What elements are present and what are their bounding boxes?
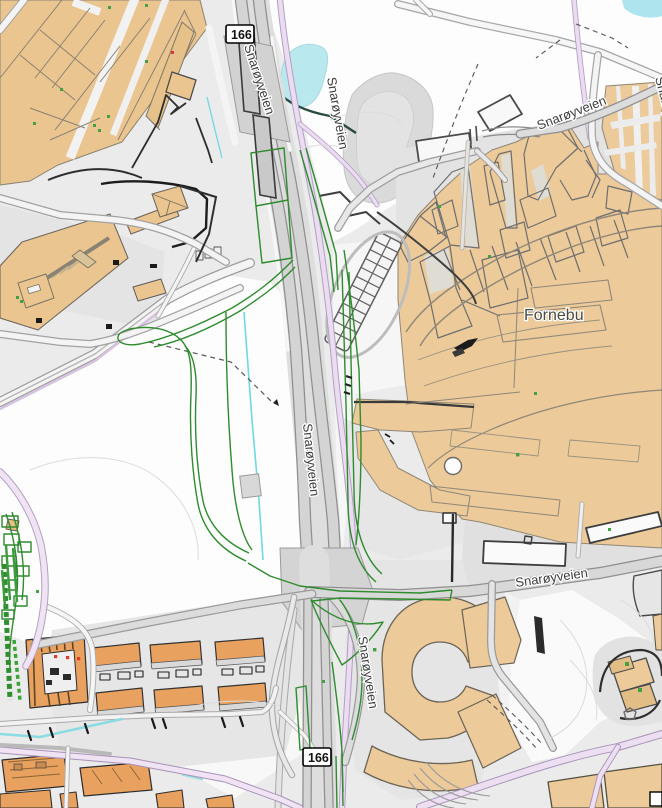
svg-text:166: 166 — [308, 751, 329, 765]
svg-text:166: 166 — [231, 28, 252, 42]
svg-text:Fornebu: Fornebu — [524, 307, 584, 324]
